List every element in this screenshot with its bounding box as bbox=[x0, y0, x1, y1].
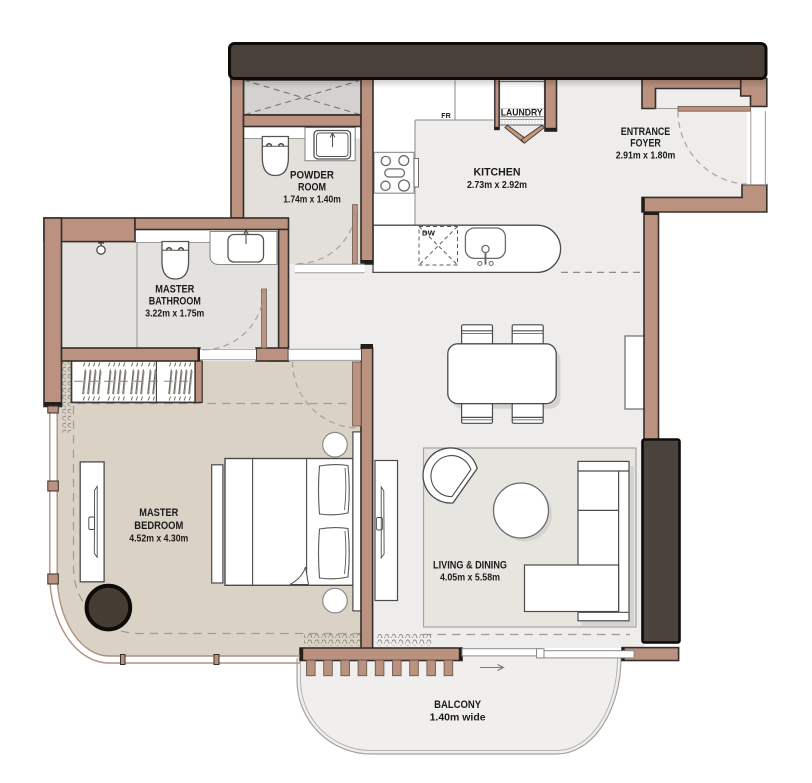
svg-text:1.40m wide: 1.40m wide bbox=[430, 713, 486, 724]
svg-text:2.91m x 1.80m: 2.91m x 1.80m bbox=[616, 151, 676, 162]
svg-text:KITCHEN: KITCHEN bbox=[474, 166, 521, 178]
svg-text:DW: DW bbox=[422, 231, 435, 238]
svg-text:ROOM: ROOM bbox=[298, 182, 326, 194]
svg-text:FOYER: FOYER bbox=[630, 138, 661, 150]
svg-text:1.74m x 1.40m: 1.74m x 1.40m bbox=[283, 195, 341, 206]
svg-text:LIVING & DINING: LIVING & DINING bbox=[433, 560, 507, 572]
svg-text:LAUNDRY: LAUNDRY bbox=[501, 108, 544, 119]
svg-text:3.22m x 1.75m: 3.22m x 1.75m bbox=[145, 308, 204, 319]
svg-text:BEDROOM: BEDROOM bbox=[134, 520, 183, 532]
svg-text:2.73m x 2.92m: 2.73m x 2.92m bbox=[467, 180, 527, 191]
svg-text:4.05m x 5.58m: 4.05m x 5.58m bbox=[440, 573, 500, 584]
svg-text:BALCONY: BALCONY bbox=[434, 699, 482, 711]
svg-text:BATHROOM: BATHROOM bbox=[149, 295, 201, 307]
svg-text:POWDER: POWDER bbox=[290, 170, 334, 182]
svg-text:FR: FR bbox=[441, 113, 451, 120]
svg-text:4.52m x 4.30m: 4.52m x 4.30m bbox=[129, 534, 188, 545]
svg-text:ENTRANCE: ENTRANCE bbox=[621, 126, 671, 138]
svg-text:MASTER: MASTER bbox=[139, 507, 178, 519]
svg-text:MASTER: MASTER bbox=[155, 283, 194, 295]
